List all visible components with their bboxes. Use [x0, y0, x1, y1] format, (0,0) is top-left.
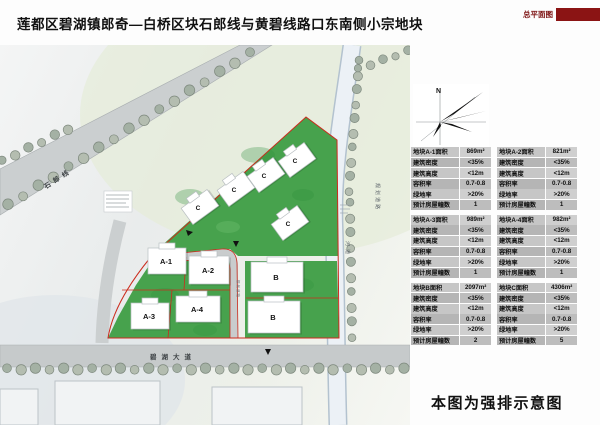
road-internal-label: 规划道路 [236, 280, 241, 298]
stat-value: 821m² [546, 147, 577, 157]
stat-label: 地块C面积 [497, 283, 545, 293]
corner-red-bar [556, 8, 600, 21]
stat-value: >20% [460, 257, 491, 267]
river-label: 河道 [344, 241, 351, 257]
building-c-3-label: C [262, 173, 267, 180]
stat-value: 989m² [460, 215, 491, 225]
north-compass: N [413, 84, 489, 148]
stat-label: 建筑密度 [497, 293, 545, 303]
stat-label: 容积率 [497, 179, 545, 189]
stat-label: 地块A-2面积 [497, 147, 545, 157]
stat-value: 0.7-0.8 [546, 179, 577, 189]
stat-value: >20% [460, 325, 491, 335]
north-label: N [436, 88, 441, 95]
stat-value: >20% [546, 189, 577, 199]
stat-label: 建筑高度 [497, 236, 545, 246]
footnote: 本图为强排示意图 [431, 392, 563, 413]
plot-a2-stats-table: 地块A-2面积821m² 建筑密度<35% 建筑高度<12m 容积率0.7-0.… [497, 147, 577, 210]
plot-a3-stats-table: 地块A-3面积989m² 建筑密度<35% 建筑高度<12m 容积率0.7-0.… [411, 215, 491, 278]
stats-panel: 地块A-1面积869m² 建筑密度<35% 建筑高度<12m 容积率0.7-0.… [411, 147, 577, 345]
stat-label: 绿地率 [411, 189, 459, 199]
stat-label: 容积率 [411, 314, 459, 324]
stat-value: <12m [460, 168, 491, 178]
annotation-box-left [104, 191, 132, 212]
tree-row-bottom [3, 363, 410, 375]
stat-value: >20% [460, 189, 491, 199]
plot-a4-stats-table: 地块A-4面积982m² 建筑密度<35% 建筑高度<12m 容积率0.7-0.… [497, 215, 577, 278]
road-right-label: 规划道路 [374, 183, 381, 211]
stat-label: 绿地率 [411, 257, 459, 267]
stat-label: 预计房屋幢数 [497, 336, 545, 346]
stat-label: 容积率 [497, 314, 545, 324]
site-plan-map: C C C C C [0, 45, 410, 425]
page-title: 莲都区碧湖镇郎奇—白桥区块石郎线与黄碧线路口东南侧小宗地块 [17, 13, 497, 33]
stat-value: <35% [460, 225, 491, 235]
site-plan-drawing: C C C C C [0, 45, 410, 425]
stat-value: 0.7-0.8 [460, 314, 491, 324]
stat-label: 建筑高度 [497, 168, 545, 178]
stat-value: <12m [546, 304, 577, 314]
stat-value: 0.7-0.8 [460, 247, 491, 257]
stat-label: 预计房屋幢数 [411, 336, 459, 346]
plot-c-stats-table: 地块C面积4306m² 建筑密度<35% 建筑高度<12m 容积率0.7-0.8… [497, 283, 577, 346]
stat-value: <35% [460, 158, 491, 168]
stat-value: <12m [460, 304, 491, 314]
stat-label: 预计房屋幢数 [497, 268, 545, 278]
stat-value: >20% [546, 325, 577, 335]
stat-label: 建筑密度 [411, 293, 459, 303]
building-c-5-label: C [286, 221, 291, 228]
stat-value: 1 [546, 268, 577, 278]
stat-value: 4306m² [546, 283, 577, 293]
stat-label: 建筑密度 [497, 158, 545, 168]
stat-label: 绿地率 [497, 189, 545, 199]
plot-b2-label: B [270, 313, 276, 322]
stat-label: 容积率 [411, 179, 459, 189]
stat-value: 1 [460, 200, 491, 210]
stat-label: 容积率 [497, 247, 545, 257]
stat-value: <12m [460, 236, 491, 246]
plot-b-stats-table: 地块B面积2097m² 建筑密度<35% 建筑高度<12m 容积率0.7-0.8… [411, 283, 491, 346]
stat-value: 0.7-0.8 [460, 179, 491, 189]
plot-a4-label: A-4 [191, 305, 204, 314]
plot-a3-label: A-3 [143, 312, 155, 321]
stat-label: 建筑密度 [411, 225, 459, 235]
stat-label: 绿地率 [497, 257, 545, 267]
stat-value: 2097m² [460, 283, 491, 293]
plot-a1-stats-table: 地块A-1面积869m² 建筑密度<35% 建筑高度<12m 容积率0.7-0.… [411, 147, 491, 210]
building-c-4-label: C [293, 158, 298, 165]
stat-value: 0.7-0.8 [546, 314, 577, 324]
stat-value: 2 [460, 336, 491, 346]
stat-label: 地块A-1面积 [411, 147, 459, 157]
stat-value: 1 [460, 268, 491, 278]
plot-a1-label: A-1 [160, 257, 172, 266]
stat-value: 0.7-0.8 [546, 247, 577, 257]
stat-label: 建筑密度 [497, 225, 545, 235]
stat-label: 容积率 [411, 247, 459, 257]
stat-label: 绿地率 [497, 325, 545, 335]
building-c-2-label: C [232, 187, 237, 194]
stat-value: >20% [546, 257, 577, 267]
stat-label: 预计房屋幢数 [411, 200, 459, 210]
stat-label: 预计房屋幢数 [411, 268, 459, 278]
stat-value: 869m² [460, 147, 491, 157]
corner-tag: 总平面图 [523, 7, 600, 22]
stat-label: 绿地率 [411, 325, 459, 335]
stat-value: <12m [546, 236, 577, 246]
stat-value: <35% [546, 225, 577, 235]
plot-a2-label: A-2 [202, 266, 214, 275]
stat-value: 1 [546, 200, 577, 210]
stat-value: <12m [546, 168, 577, 178]
stat-label: 建筑高度 [411, 168, 459, 178]
stat-label: 建筑高度 [411, 236, 459, 246]
site-plan-sheet: 莲都区碧湖镇郎奇—白桥区块石郎线与黄碧线路口东南侧小宗地块 总平面图 [0, 0, 600, 425]
tree-row-river-lower [346, 198, 357, 341]
stat-value: <35% [546, 293, 577, 303]
stat-label: 地块A-3面积 [411, 215, 459, 225]
stat-label: 建筑密度 [411, 158, 459, 168]
plot-b1-label: B [273, 273, 279, 282]
corner-tag-label: 总平面图 [523, 9, 553, 20]
stat-label: 预计房屋幢数 [497, 200, 545, 210]
road-bottom-label: 碧湖大道 [149, 352, 196, 361]
stat-value: 5 [546, 336, 577, 346]
stat-label: 建筑高度 [411, 304, 459, 314]
building-c-1-label: C [196, 205, 201, 212]
stat-value: <35% [546, 158, 577, 168]
stat-value: <35% [460, 293, 491, 303]
stat-label: 建筑高度 [497, 304, 545, 314]
stat-label: 地块A-4面积 [497, 215, 545, 225]
stat-label: 地块B面积 [411, 283, 459, 293]
stat-value: 982m² [546, 215, 577, 225]
